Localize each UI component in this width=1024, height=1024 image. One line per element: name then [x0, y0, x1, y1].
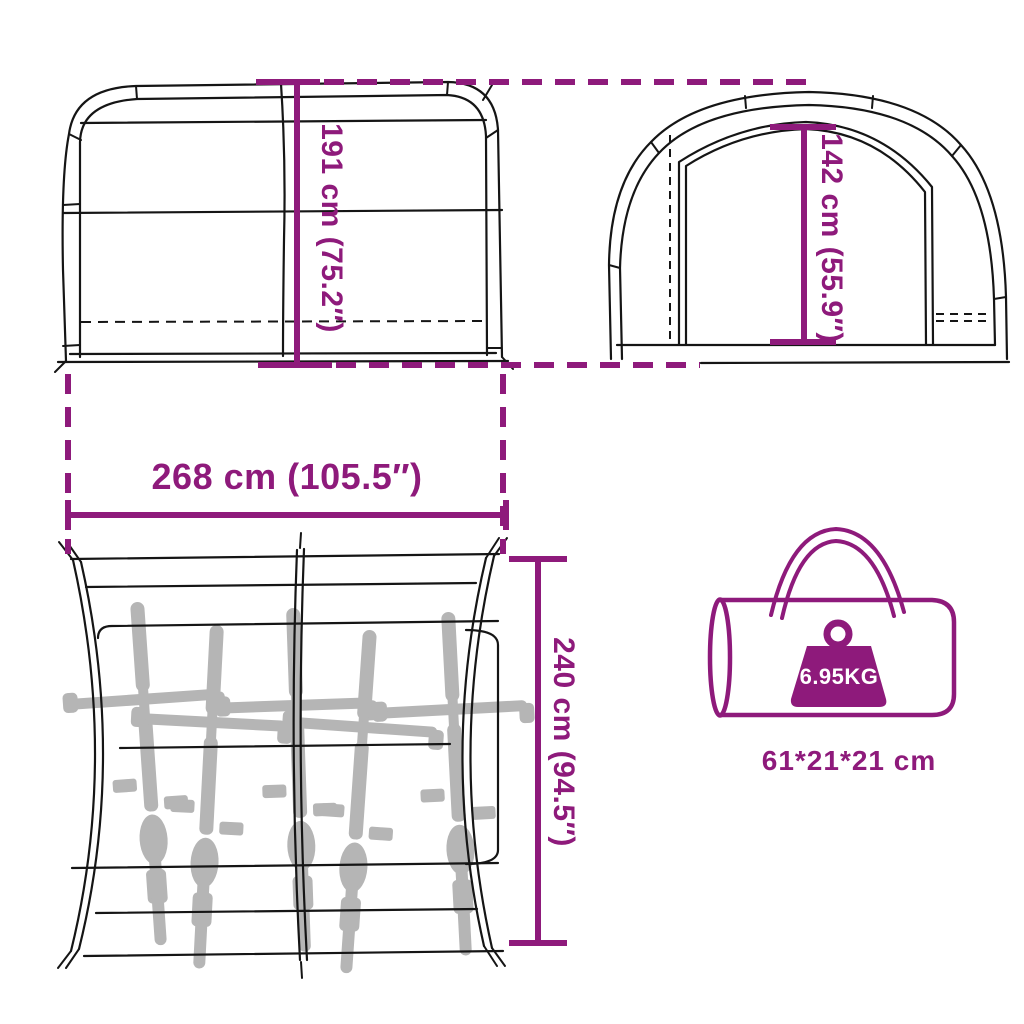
width-label: 268 cm (105.5″) [152, 456, 423, 498]
width-dim-tick-right [503, 500, 509, 530]
side-view-center-seam [281, 84, 285, 356]
depth-dim-cap-top [509, 556, 567, 562]
depth-label: 240 cm (94.5″) [546, 637, 580, 847]
depth-dim-line [535, 556, 541, 946]
bag-end-cap [710, 600, 730, 716]
front-view-right-vent-dashed [936, 314, 986, 321]
tent-side-view [40, 60, 520, 380]
side-view-ground-inner [70, 353, 496, 354]
door-height-dim-line [801, 124, 807, 345]
bag-size-label: 61*21*21 cm [762, 745, 936, 777]
width-dim-tick-left [65, 500, 71, 530]
bicycle-silhouette [367, 608, 547, 960]
top-view-top-edge [71, 554, 499, 559]
top-view-mid-seam [120, 744, 450, 748]
top-projection-dashed-line [324, 79, 808, 85]
front-view-outer-arch [609, 92, 1007, 359]
tent-front-view [595, 65, 1024, 375]
bottom-projection-dashed-line [336, 362, 700, 368]
side-view-mid-seam [63, 210, 502, 213]
top-view-lower-seam [72, 863, 498, 868]
tent-top-view [50, 530, 530, 990]
door-height-dim-cap-top [770, 124, 836, 130]
height-dim-line [294, 79, 300, 368]
product-dimension-diagram: 191 cm (75.2″) 142 cm (55.9″) 268 cm (10… [0, 0, 1024, 1024]
side-view-upper-seam [81, 120, 486, 123]
weight-icon [827, 623, 849, 645]
door-height-label: 142 cm (55.9″) [814, 133, 848, 343]
top-view-bottom-edge [84, 951, 503, 956]
width-dim-line [67, 512, 507, 518]
outer-height-label: 191 cm (75.2″) [314, 123, 348, 333]
depth-dim-cap-bottom [509, 940, 567, 946]
bag-weight-label: 6.95KG [800, 664, 879, 690]
top-view-upper-seam [86, 583, 476, 587]
front-view-ground-outer [701, 362, 1009, 363]
height-dim-cap-top [256, 79, 320, 85]
